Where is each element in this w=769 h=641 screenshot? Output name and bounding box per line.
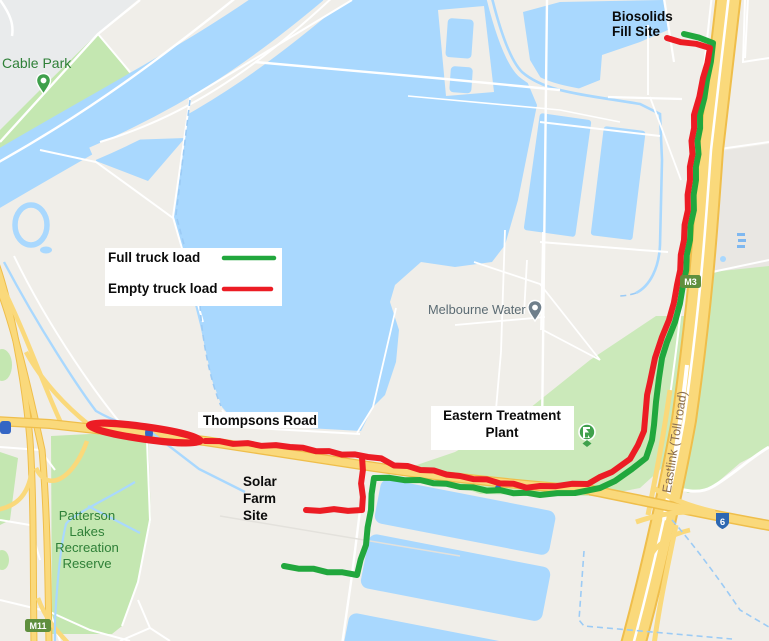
svg-text:Reserve: Reserve — [62, 556, 111, 571]
svg-text:Full truck load: Full truck load — [108, 250, 200, 265]
svg-text:Solar: Solar — [243, 474, 278, 489]
svg-text:Fill Site: Fill Site — [612, 24, 661, 39]
svg-text:Thompsons Road: Thompsons Road — [203, 413, 317, 428]
svg-text:Patterson: Patterson — [59, 508, 115, 523]
svg-text:Eastern Treatment: Eastern Treatment — [443, 408, 561, 423]
svg-text:M11: M11 — [29, 621, 46, 631]
svg-text:Melbourne Water: Melbourne Water — [428, 302, 526, 317]
svg-text:Plant: Plant — [485, 425, 519, 440]
svg-text:Cable Park: Cable Park — [2, 55, 72, 71]
svg-text:Empty truck load: Empty truck load — [108, 281, 218, 296]
svg-text:Recreation: Recreation — [55, 540, 119, 555]
svg-text:Farm: Farm — [243, 491, 276, 506]
svg-text:Lakes: Lakes — [69, 524, 105, 539]
svg-text:6: 6 — [720, 517, 725, 528]
svg-text:Site: Site — [243, 508, 268, 523]
svg-text:M3: M3 — [684, 277, 697, 287]
svg-text:Biosolids: Biosolids — [612, 9, 673, 24]
